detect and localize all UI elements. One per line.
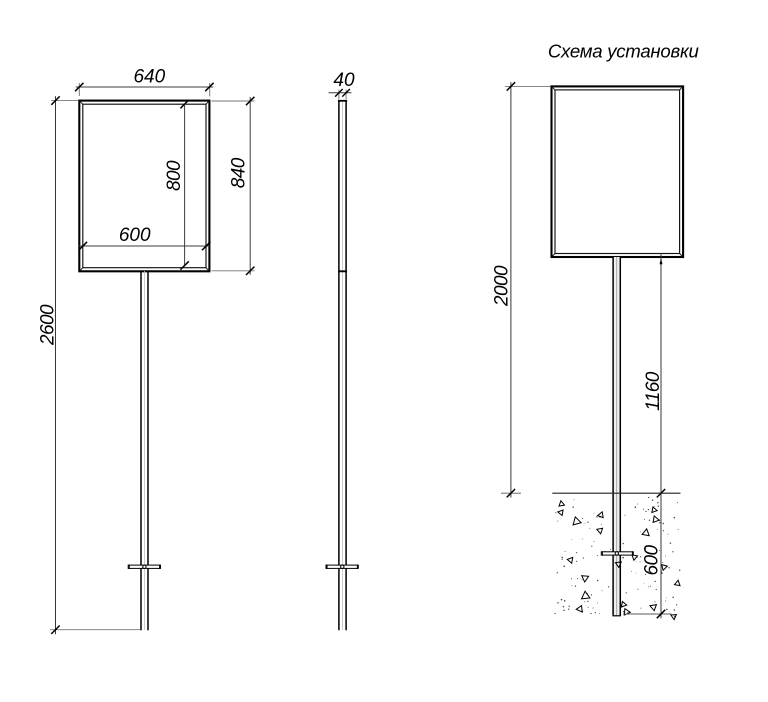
svg-text:2000: 2000 <box>491 265 512 307</box>
svg-text:40: 40 <box>333 70 355 91</box>
svg-text:640: 640 <box>133 67 165 88</box>
svg-text:600: 600 <box>642 544 663 575</box>
svg-text:800: 800 <box>164 160 185 191</box>
svg-text:Схема установки: Схема установки <box>548 40 699 61</box>
svg-text:1160: 1160 <box>643 371 664 411</box>
svg-text:600: 600 <box>119 225 151 246</box>
svg-text:840: 840 <box>229 157 250 188</box>
svg-text:2600: 2600 <box>37 304 58 346</box>
